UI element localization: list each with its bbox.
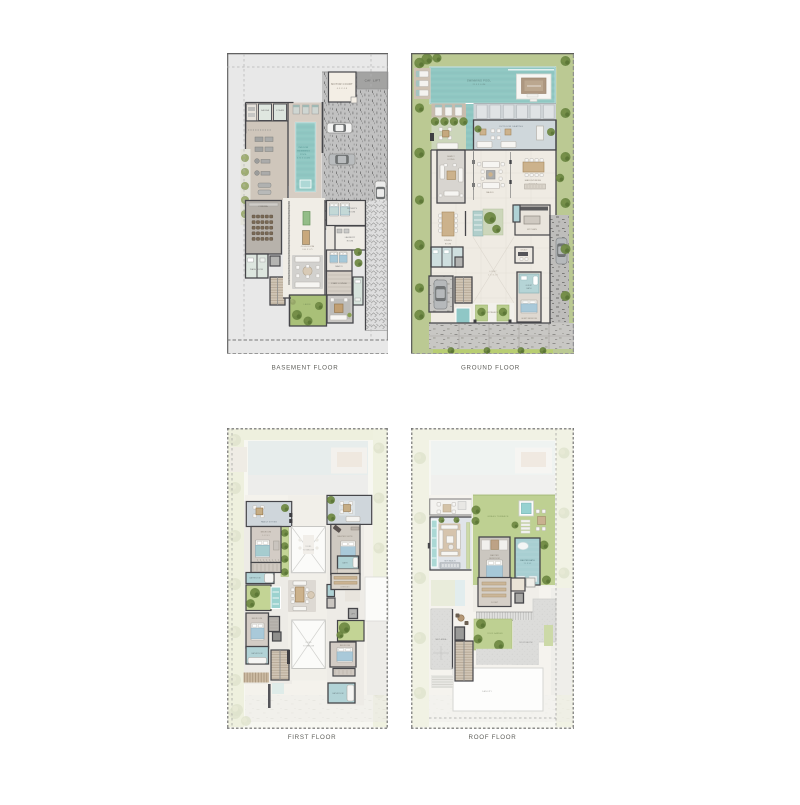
- svg-text:MOTOR COURT: MOTOR COURT: [331, 82, 353, 86]
- svg-text:MASTER: MASTER: [490, 554, 499, 557]
- svg-text:SAUNA: SAUNA: [261, 109, 269, 112]
- svg-text:ROOF GARDEN: ROOF GARDEN: [487, 632, 503, 635]
- svg-text:LIFT: LIFT: [351, 614, 355, 616]
- svg-text:BATHROOM: BATHROOM: [332, 692, 343, 695]
- svg-text:LIVING: LIVING: [447, 159, 455, 161]
- svg-text:CAR LIFT: CAR LIFT: [365, 79, 381, 83]
- svg-text:ROOM: ROOM: [445, 244, 452, 246]
- svg-text:SWIMMING POOL: SWIMMING POOL: [467, 80, 492, 83]
- svg-text:LAUNDRY: LAUNDRY: [345, 236, 356, 239]
- svg-text:MASTER BATH: MASTER BATH: [520, 559, 535, 562]
- svg-text:SWIMMING: SWIMMING: [297, 151, 310, 153]
- svg-text:GROUND FLOOR: GROUND FLOOR: [461, 365, 520, 372]
- svg-text:BATH: BATH: [526, 287, 532, 290]
- svg-text:GRASS TERRACE: GRASS TERRACE: [487, 515, 509, 518]
- svg-text:WASH ROOM: WASH ROOM: [250, 268, 263, 271]
- svg-text:FIRST FLOOR: FIRST FLOOR: [288, 734, 337, 741]
- svg-text:MEP AREA: MEP AREA: [436, 638, 448, 641]
- svg-text:KITCHEN: KITCHEN: [527, 229, 537, 231]
- svg-text:BEDROOM: BEDROOM: [340, 645, 350, 647]
- svg-text:MAJLIS: MAJLIS: [486, 191, 494, 194]
- svg-text:MAID'S: MAID'S: [335, 265, 343, 268]
- svg-text:GUEST BEDROOM: GUEST BEDROOM: [521, 318, 537, 320]
- svg-text:STEAM: STEAM: [276, 109, 284, 112]
- svg-text:8.00 X 5.75: 8.00 X 5.75: [302, 249, 312, 251]
- svg-text:CINEMA: CINEMA: [258, 205, 268, 208]
- svg-text:BATHROOM: BATHROOM: [251, 652, 262, 655]
- svg-text:BATHROOM: BATHROOM: [249, 577, 260, 580]
- svg-text:6.4 X 8.4 M: 6.4 X 8.4 M: [488, 275, 498, 277]
- svg-text:CLUB ROOM: CLUB ROOM: [301, 246, 315, 248]
- svg-text:GUEST: GUEST: [526, 285, 533, 287]
- svg-text:OUTDOOR SEATING: OUTDOOR SEATING: [499, 125, 523, 128]
- svg-text:ENTRANCE: ENTRANCE: [487, 311, 499, 314]
- svg-text:ROOM: ROOM: [349, 212, 356, 214]
- svg-text:BEDROOM: BEDROOM: [252, 618, 263, 620]
- svg-text:STUDY: STUDY: [521, 250, 529, 252]
- svg-text:ROOF FLOOR: ROOF FLOOR: [469, 734, 517, 741]
- svg-text:TO BELOW: TO BELOW: [303, 646, 314, 648]
- svg-text:21.9 X 6.4M: 21.9 X 6.4M: [473, 84, 486, 86]
- svg-text:VOID: VOID: [305, 546, 311, 548]
- svg-text:BEDROOM: BEDROOM: [261, 532, 272, 534]
- svg-text:BASEMENT FLOOR: BASEMENT FLOOR: [272, 365, 339, 372]
- svg-text:5.4 X 4.5: 5.4 X 4.5: [262, 535, 270, 537]
- svg-text:POOL: POOL: [300, 154, 307, 156]
- svg-text:LAWN: LAWN: [303, 303, 310, 306]
- svg-text:TO BELOW: TO BELOW: [303, 550, 314, 552]
- svg-text:3.75 X 10.0M: 3.75 X 10.0M: [297, 158, 310, 160]
- svg-text:ROOF BELOW: ROOF BELOW: [519, 642, 532, 644]
- svg-text:FAMILY: FAMILY: [447, 155, 455, 158]
- svg-text:CLOSET: CLOSET: [491, 602, 498, 604]
- svg-text:DRESSING: DRESSING: [340, 587, 350, 589]
- svg-text:BATH: BATH: [342, 562, 348, 565]
- svg-text:CANOPY: CANOPY: [482, 690, 493, 693]
- svg-text:ROOM: ROOM: [347, 241, 354, 243]
- svg-text:MAJLIS/DINING: MAJLIS/DINING: [525, 179, 542, 182]
- svg-text:INDOOR: INDOOR: [299, 147, 309, 149]
- svg-text:DINING: DINING: [444, 240, 452, 242]
- svg-text:4.5 X 4.8: 4.5 X 4.8: [337, 88, 348, 90]
- svg-text:STAFF LOUNGE: STAFF LOUNGE: [331, 282, 347, 285]
- svg-text:DRIVER'S: DRIVER'S: [347, 208, 358, 210]
- svg-text:MASTER SUITE: MASTER SUITE: [337, 535, 353, 538]
- svg-text:7.1 X 3.2: 7.1 X 3.2: [524, 563, 532, 565]
- svg-text:FAMILY SITTING: FAMILY SITTING: [261, 521, 277, 524]
- svg-text:SKY MAJLIS: SKY MAJLIS: [444, 560, 456, 563]
- svg-text:LOBBY: LOBBY: [489, 271, 497, 273]
- svg-text:VOID: VOID: [305, 642, 311, 644]
